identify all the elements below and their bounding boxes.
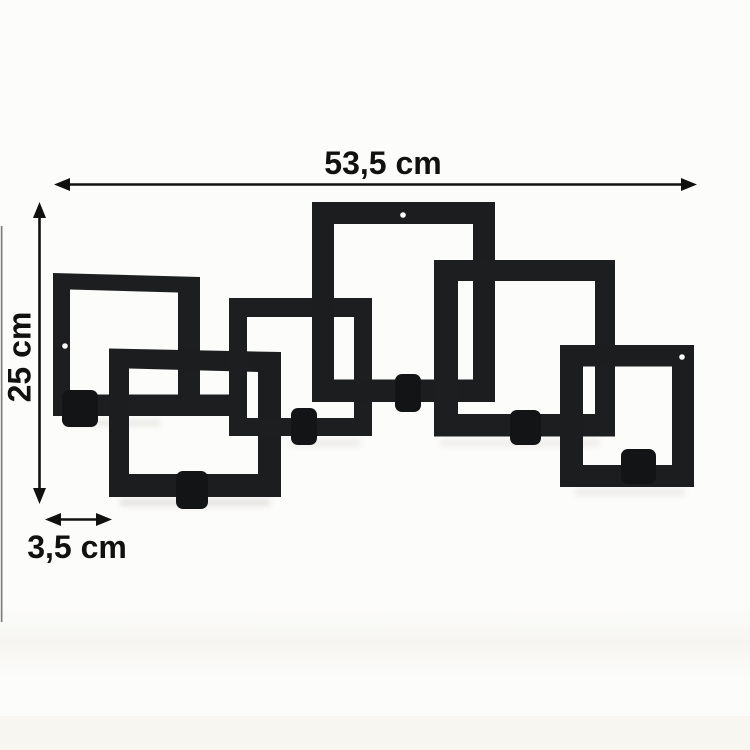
svg-text:25 cm: 25 cm <box>2 312 38 403</box>
svg-text:3,5 cm: 3,5 cm <box>27 529 127 565</box>
svg-text:53,5 cm: 53,5 cm <box>324 145 441 181</box>
